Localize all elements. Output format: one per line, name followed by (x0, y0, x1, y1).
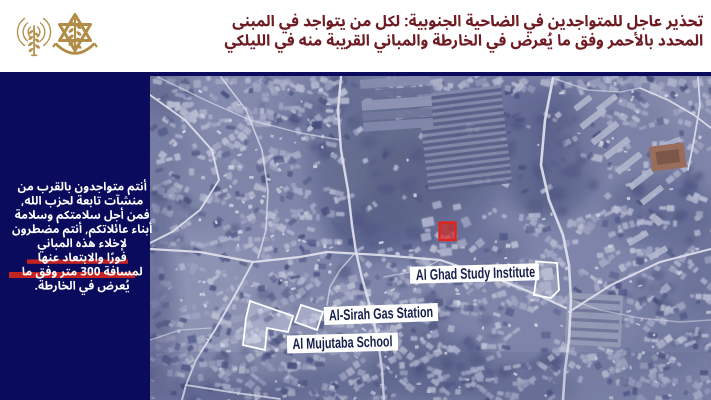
svg-text:Al Ghad Study Institute: Al Ghad Study Institute (416, 263, 536, 284)
svg-text:Al Mujutaba School: Al Mujutaba School (292, 332, 393, 352)
svg-text:Al-Sirah Gas Station: Al-Sirah Gas Station (329, 303, 434, 324)
